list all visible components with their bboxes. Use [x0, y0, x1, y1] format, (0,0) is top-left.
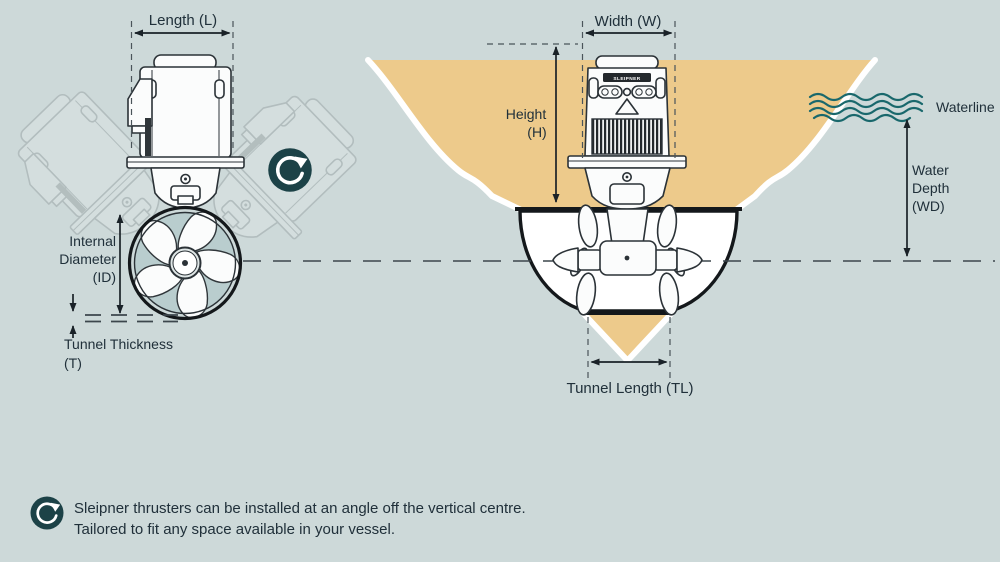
water-depth-dimension: Water Depth (WD) — [907, 120, 949, 256]
water-depth-line1: Water — [912, 162, 949, 178]
width-label: Width (W) — [595, 13, 662, 30]
thruster-installation-diagram: SLEIPNER — [0, 0, 1000, 562]
propeller-front-view — [130, 208, 244, 323]
length-label: Length (L) — [149, 12, 217, 29]
internal-diameter-line2: Diameter — [59, 251, 116, 267]
motor-brand-label: SLEIPNER — [613, 76, 640, 82]
height-line1: Height — [506, 106, 547, 122]
footer-note-line2: Tailored to fit any space available in y… — [74, 521, 395, 538]
rotation-icon — [31, 497, 64, 530]
tunnel-thickness-line1: Tunnel Thickness — [64, 336, 173, 352]
tunnel-length-label: Tunnel Length (TL) — [566, 380, 693, 397]
height-line2: (H) — [527, 124, 546, 140]
installation-diagram-canvas: SLEIPNER — [0, 0, 1000, 562]
water-depth-line2: Depth — [912, 180, 949, 196]
internal-diameter-line1: Internal — [69, 233, 116, 249]
footer-note-line1: Sleipner thrusters can be installed at a… — [74, 500, 526, 517]
waterline-label: Waterline — [936, 99, 995, 115]
footer-note: Sleipner thrusters can be installed at a… — [31, 497, 526, 539]
internal-diameter-line3: (ID) — [93, 269, 116, 285]
water-depth-line3: (WD) — [912, 198, 945, 214]
rotation-icon — [268, 148, 312, 192]
tunnel-thickness-line2: (T) — [64, 355, 82, 371]
